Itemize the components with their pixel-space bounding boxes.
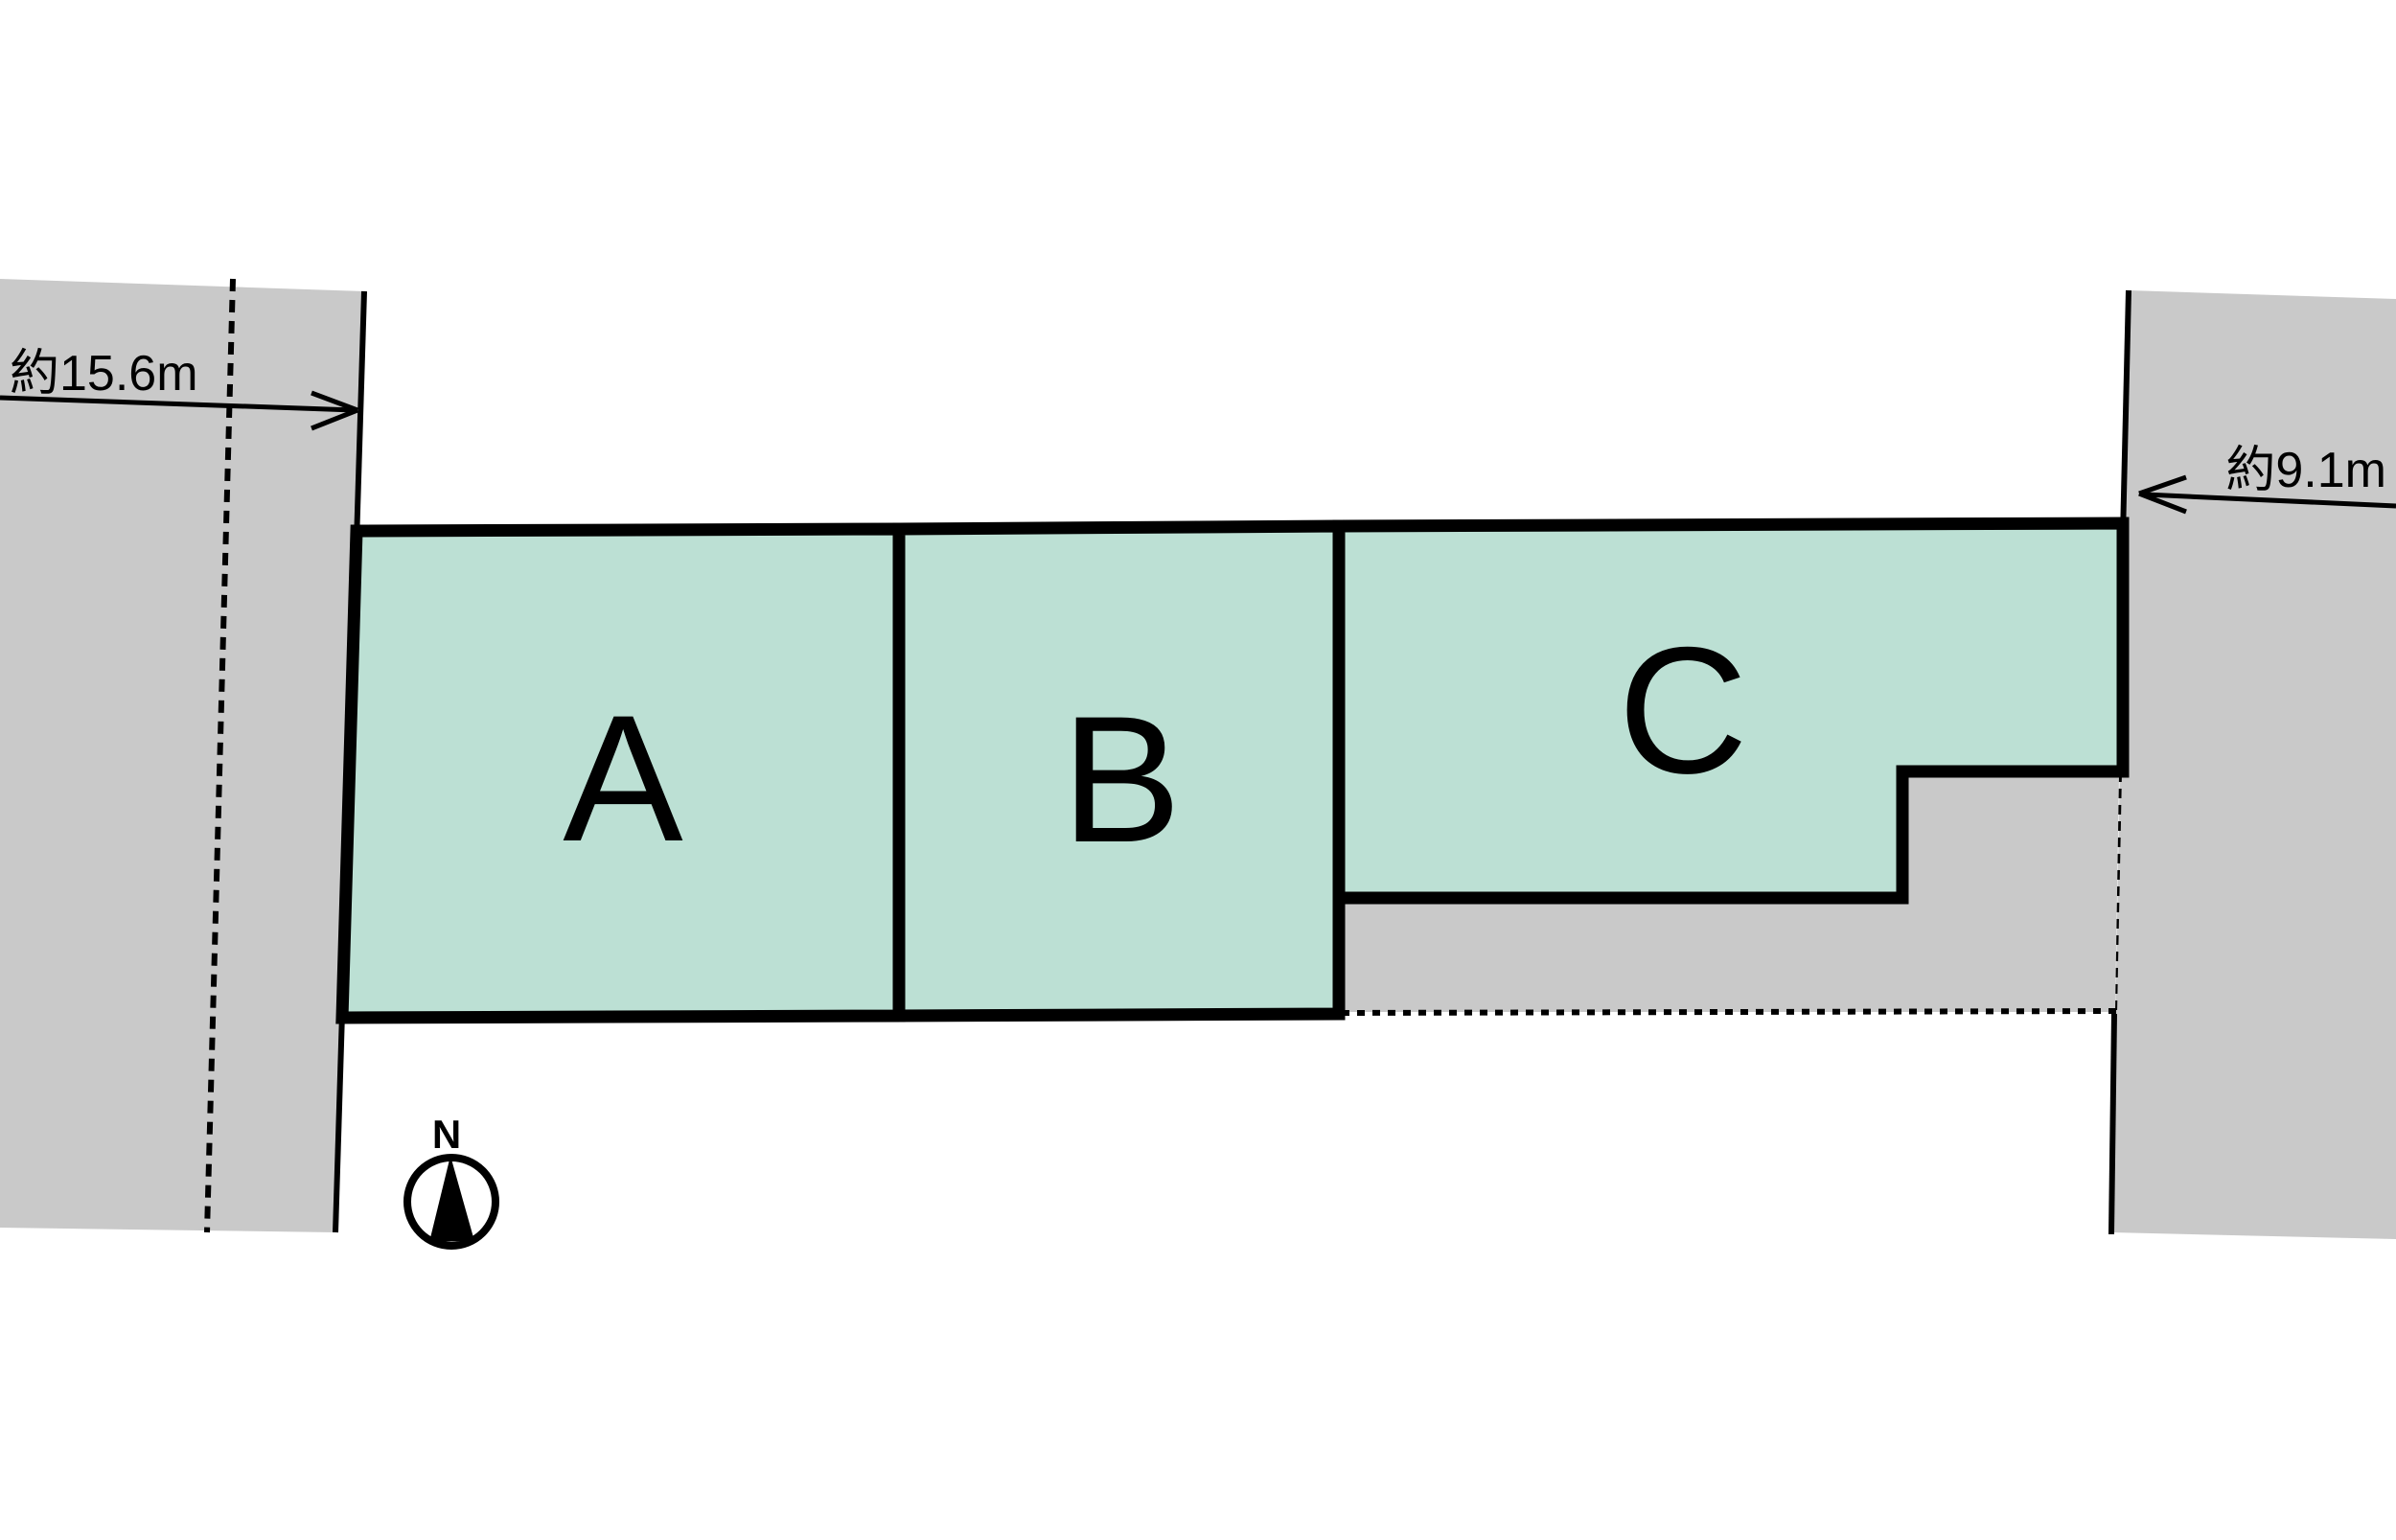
left-road-surface (0, 279, 364, 1232)
lot-c-label: C (1618, 609, 1748, 811)
site-plan-diagram: A B C 約15.6m 約9.1m N (0, 0, 2396, 1540)
left-road-width-label: 約15.6m (10, 346, 198, 402)
lot-b-label: B (1061, 678, 1181, 880)
site-plan-svg: A B C 約15.6m 約9.1m N (0, 0, 2396, 1540)
right-road-width-label: 約9.1m (2225, 443, 2386, 498)
lot-a-label: A (563, 678, 683, 879)
compass-north-label: N (432, 1112, 461, 1157)
right-road-west-edge-line-lower (2111, 1014, 2114, 1234)
right-road-surface (2111, 290, 2396, 1239)
